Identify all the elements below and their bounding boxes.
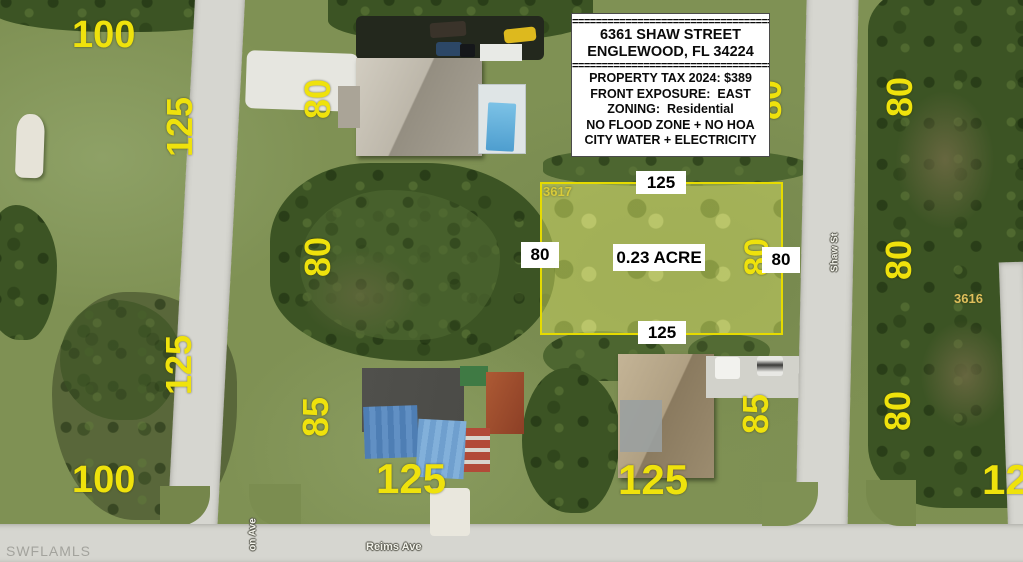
- dimension-label: 80: [882, 60, 920, 134]
- blue-tarp: [363, 405, 419, 459]
- shed-red-roof: [486, 372, 524, 434]
- concrete-slab: [620, 400, 662, 452]
- shed-small: [462, 428, 490, 472]
- address-line-1: 6361 SHAW STREET: [572, 27, 769, 44]
- road-shaw-st: [794, 0, 859, 562]
- tree-canopy: [522, 368, 620, 513]
- street-label-reims-ave: Reims Ave: [366, 541, 421, 553]
- lot-frontage-top-label: 125: [636, 171, 686, 194]
- lanai-roof: [480, 44, 522, 61]
- street-label-shaw-st: Shaw St: [830, 218, 841, 288]
- house-wing: [338, 86, 360, 128]
- divider-line: ==================================: [572, 17, 769, 27]
- aerial-map: 3617 80 125 125 80 80 0.23 ACRE 100 125 …: [0, 0, 1023, 562]
- boat: [15, 114, 45, 179]
- parcel-number-label: 3616: [954, 291, 983, 306]
- divider-line: ==================================: [572, 61, 769, 71]
- address-line-2: ENGLEWOOD, FL 34224: [572, 44, 769, 61]
- car: [430, 21, 467, 38]
- dimension-label: 80: [300, 220, 338, 294]
- detail-line: FRONT EXPOSURE: EAST: [572, 87, 769, 103]
- dimension-label: 80: [881, 223, 919, 297]
- dimension-label: 100: [72, 16, 135, 54]
- detail-line: CITY WATER + ELECTRICITY: [572, 133, 769, 149]
- house-roof: [356, 58, 482, 156]
- dimension-label: 80: [880, 374, 918, 448]
- street-label-left-avenue: on Ave: [248, 500, 259, 562]
- car: [460, 44, 475, 57]
- dimension-label: 125: [376, 458, 446, 500]
- detail-line: ZONING: Residential: [572, 102, 769, 118]
- road-left-avenue: [164, 0, 246, 562]
- mls-watermark: SWFLAMLS: [6, 543, 91, 559]
- dimension-label: 85: [738, 377, 776, 451]
- car: [715, 357, 740, 379]
- car: [757, 356, 783, 376]
- dirt-patch: [920, 320, 1010, 430]
- tree-canopy: [0, 205, 57, 340]
- car: [436, 42, 462, 56]
- parcel-number-label: 3617: [543, 184, 572, 199]
- lot-frontage-bottom-label: 125: [638, 321, 686, 344]
- detail-line: PROPERTY TAX 2024: $389: [572, 71, 769, 87]
- dimension-label: 125: [161, 328, 199, 402]
- lot-area-label: 0.23 ACRE: [613, 244, 705, 271]
- property-info-card: ================================== 6361 …: [571, 13, 770, 157]
- lot-depth-left-label: 80: [521, 242, 559, 268]
- dimension-label: 125: [982, 459, 1023, 501]
- dimension-label: 80: [300, 62, 338, 136]
- dimension-label: 125: [162, 90, 200, 164]
- block-corner: [866, 480, 916, 526]
- lot-depth-right-label: 80: [762, 247, 800, 273]
- dimension-label: 125: [618, 459, 688, 501]
- road-reims-ave: [0, 524, 1023, 562]
- swimming-pool: [486, 102, 516, 151]
- dimension-label: 85: [298, 380, 336, 454]
- shed-green: [460, 366, 488, 386]
- detail-line: NO FLOOD ZONE + NO HOA: [572, 118, 769, 134]
- dimension-label: 100: [72, 461, 135, 499]
